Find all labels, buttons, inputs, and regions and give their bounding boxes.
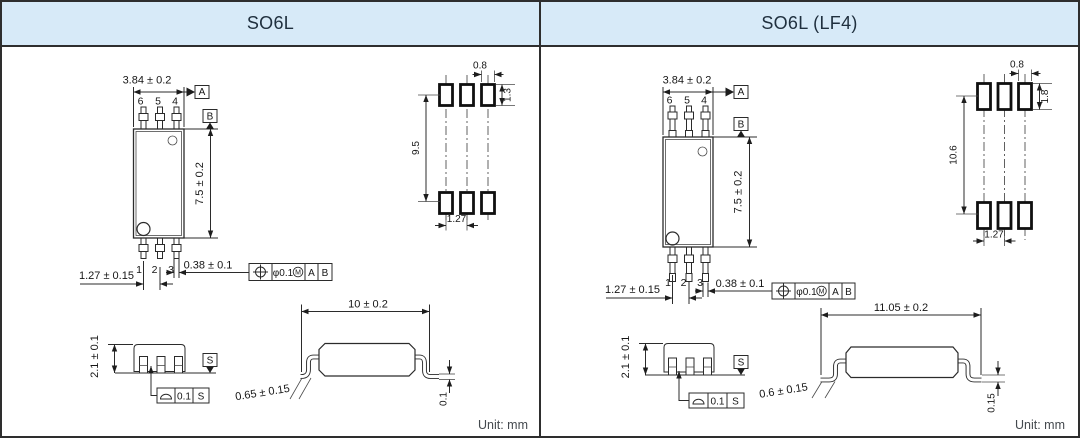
package-body-outline: [134, 129, 185, 238]
standoff-dim-label: 0.1: [439, 392, 450, 406]
pin6-label: 6: [667, 95, 673, 107]
pad-pitch-label: 1.27: [984, 230, 1004, 241]
datum-s-triangle: [737, 369, 745, 376]
package-body-outline: [663, 137, 713, 247]
datum-a-flag: A: [187, 86, 210, 99]
top-view: 6 5 4 1 2 3 3.84 ± 0.2: [79, 75, 332, 291]
row-span-label: 9.5: [411, 141, 422, 155]
pad-height-label: 1.3: [503, 88, 514, 102]
top-leads: [139, 107, 181, 129]
seating-plane-frame: 0.1 S: [679, 371, 744, 408]
top-leads: [668, 106, 710, 137]
panel-title: SO6L (LF4): [761, 13, 857, 34]
datum-a-label: A: [199, 87, 206, 98]
standoff-dim-label: 0.15: [987, 393, 998, 413]
seating-fcf-tolerance: 0.1: [711, 397, 725, 408]
pin3-label: 3: [697, 277, 703, 289]
side-view: 10 ± 0.2 0.65 ± 0.15 0.1: [234, 299, 455, 406]
pin1-label: 1: [136, 264, 142, 276]
datum-a-triangle: [726, 88, 735, 97]
pin2-label: 2: [152, 264, 158, 276]
fcf-datum1: A: [832, 287, 839, 298]
datum-b-triangle: [737, 131, 745, 138]
seating-fcf-datum: S: [732, 397, 739, 408]
so6l-lf4-drawing: 6 5 4 1 2 3 3.84 ± 0.2: [541, 47, 1077, 436]
pin4-label: 4: [701, 95, 707, 107]
height-dim-label: 7.5 ± 0.2: [733, 171, 745, 214]
pin6-label: 6: [138, 96, 144, 108]
pitch-dimension: 1.27 ± 0.15: [79, 261, 173, 290]
datum-s-label: S: [207, 356, 214, 367]
lead-width-dimension: 0.38 ± 0.1: [166, 259, 249, 278]
land-pads: [978, 84, 1032, 229]
top-view: 6 5 4 1 2 3 3.84 ± 0.2: [605, 75, 855, 305]
panel-so6l-lf4-body: 6 5 4 1 2 3 3.84 ± 0.2: [541, 47, 1078, 436]
row-span-label: 10.6: [949, 145, 960, 165]
pin4-label: 4: [172, 96, 178, 108]
datum-b-flag: B: [713, 118, 757, 138]
unit-label: Unit: mm: [1015, 418, 1065, 432]
pin1-label: 1: [665, 277, 671, 289]
pitch-dim-label: 1.27 ± 0.15: [79, 270, 134, 282]
panel-so6l-lf4: SO6L (LF4): [539, 2, 1078, 436]
lead-width-dim-label: 0.38 ± 0.1: [716, 278, 765, 290]
body-height-dimension: 2.1 ± 0.1: [620, 336, 663, 379]
position-tolerance-frame: φ0.1 M A B: [772, 283, 855, 299]
panel-so6l: SO6L: [2, 2, 539, 436]
pad-height-dimension: 1.3: [496, 85, 515, 106]
pad-width-label: 0.8: [1010, 60, 1024, 71]
pad-pitch-dimension: 1.27: [973, 230, 1016, 247]
pad-width-label: 0.8: [473, 61, 487, 72]
pin3-label: 3: [168, 264, 174, 276]
body-height-label: 2.1 ± 0.1: [89, 335, 101, 378]
end-view: 2.1 ± 0.1 S 0.1 S: [620, 336, 748, 408]
panel-so6l-header: SO6L: [2, 2, 539, 47]
datum-s-flag: S: [734, 356, 748, 376]
datum-s-flag: S: [203, 354, 217, 374]
datum-b-label: B: [207, 112, 214, 123]
land-pattern: 0.8 1.8 10.6: [949, 60, 1053, 247]
seating-fcf-datum: S: [198, 392, 205, 403]
fcf-datum2: B: [845, 287, 852, 298]
standoff-dimension: 0.1: [439, 360, 456, 406]
bottom-leads: [668, 247, 710, 282]
panel-so6l-body: 6 5 4 1 2 3 3.84 ± 0.2: [2, 47, 539, 436]
land-pattern: 0.8 1.3 9.5: [411, 61, 515, 231]
fcf-tolerance: φ0.1: [796, 287, 817, 298]
fcf-tolerance: φ0.1: [273, 268, 294, 279]
body-height-dimension: 2.1 ± 0.1: [89, 335, 133, 378]
pad-pitch-dimension: 1.27: [435, 214, 478, 231]
end-view-leads: [669, 358, 712, 375]
end-view-leads: [140, 357, 183, 374]
height-dimension: 7.5 ± 0.2: [713, 137, 757, 247]
fcf-datum1: A: [308, 268, 315, 279]
datum-a-flag: A: [726, 86, 749, 99]
pin2-label: 2: [681, 277, 687, 289]
side-view-body: [319, 344, 415, 377]
fcf-datum2: B: [322, 268, 329, 279]
position-tolerance-frame: φ0.1 M A B: [249, 264, 332, 281]
unit-label: Unit: mm: [478, 418, 528, 432]
panel-title: SO6L: [247, 13, 294, 34]
package-drawing-sheet: SO6L: [0, 0, 1080, 438]
pin5-label: 5: [684, 95, 690, 107]
length-dim-label: 11.05 ± 0.2: [874, 302, 928, 314]
height-dim-label: 7.5 ± 0.2: [194, 162, 206, 205]
height-dimension: 7.5 ± 0.2: [184, 129, 218, 238]
fcf-modifier: M: [819, 289, 825, 296]
side-view-body: [846, 347, 958, 378]
standoff-dimension: 0.15: [982, 361, 1005, 413]
width-dim-label: 3.84 ± 0.2: [663, 75, 712, 87]
width-dim-label: 3.84 ± 0.2: [123, 75, 172, 87]
pin5-label: 5: [155, 96, 161, 108]
datum-a-label: A: [738, 87, 745, 98]
datum-b-triangle: [206, 123, 214, 130]
pitch-dim-label: 1.27 ± 0.15: [605, 284, 660, 296]
so6l-drawing: 6 5 4 1 2 3 3.84 ± 0.2: [2, 47, 540, 436]
body-height-label: 2.1 ± 0.1: [620, 336, 632, 379]
side-view: 11.05 ± 0.2 0.6 ± 0.15 0.15: [758, 302, 1005, 413]
foot-length-dimension: 0.65 ± 0.15: [234, 378, 311, 403]
datum-s-triangle: [206, 367, 214, 374]
row-span-dimension: 10.6: [949, 96, 979, 214]
panel-so6l-lf4-header: SO6L (LF4): [541, 2, 1078, 47]
foot-dim-label: 0.6 ± 0.15: [758, 381, 808, 400]
datum-b-label: B: [738, 120, 745, 131]
row-span-dimension: 9.5: [411, 95, 440, 202]
length-dim-label: 10 ± 0.2: [348, 299, 388, 311]
pad-height-label: 1.8: [1040, 89, 1051, 103]
datum-a-triangle: [187, 88, 196, 97]
seating-fcf-tolerance: 0.1: [177, 392, 191, 403]
lead-width-dim-label: 0.38 ± 0.1: [184, 260, 233, 272]
foot-dim-label: 0.65 ± 0.15: [234, 383, 290, 403]
datum-s-label: S: [738, 358, 745, 369]
pad-height-dimension: 1.8: [1033, 84, 1052, 110]
datum-b-flag: B: [184, 110, 218, 130]
bottom-leads: [139, 238, 181, 259]
end-view: 2.1 ± 0.1 S 0.1 S: [89, 335, 217, 403]
foot-length-dimension: 0.6 ± 0.15: [758, 381, 835, 400]
fcf-modifier: M: [295, 270, 301, 277]
pad-pitch-label: 1.27: [447, 214, 467, 225]
